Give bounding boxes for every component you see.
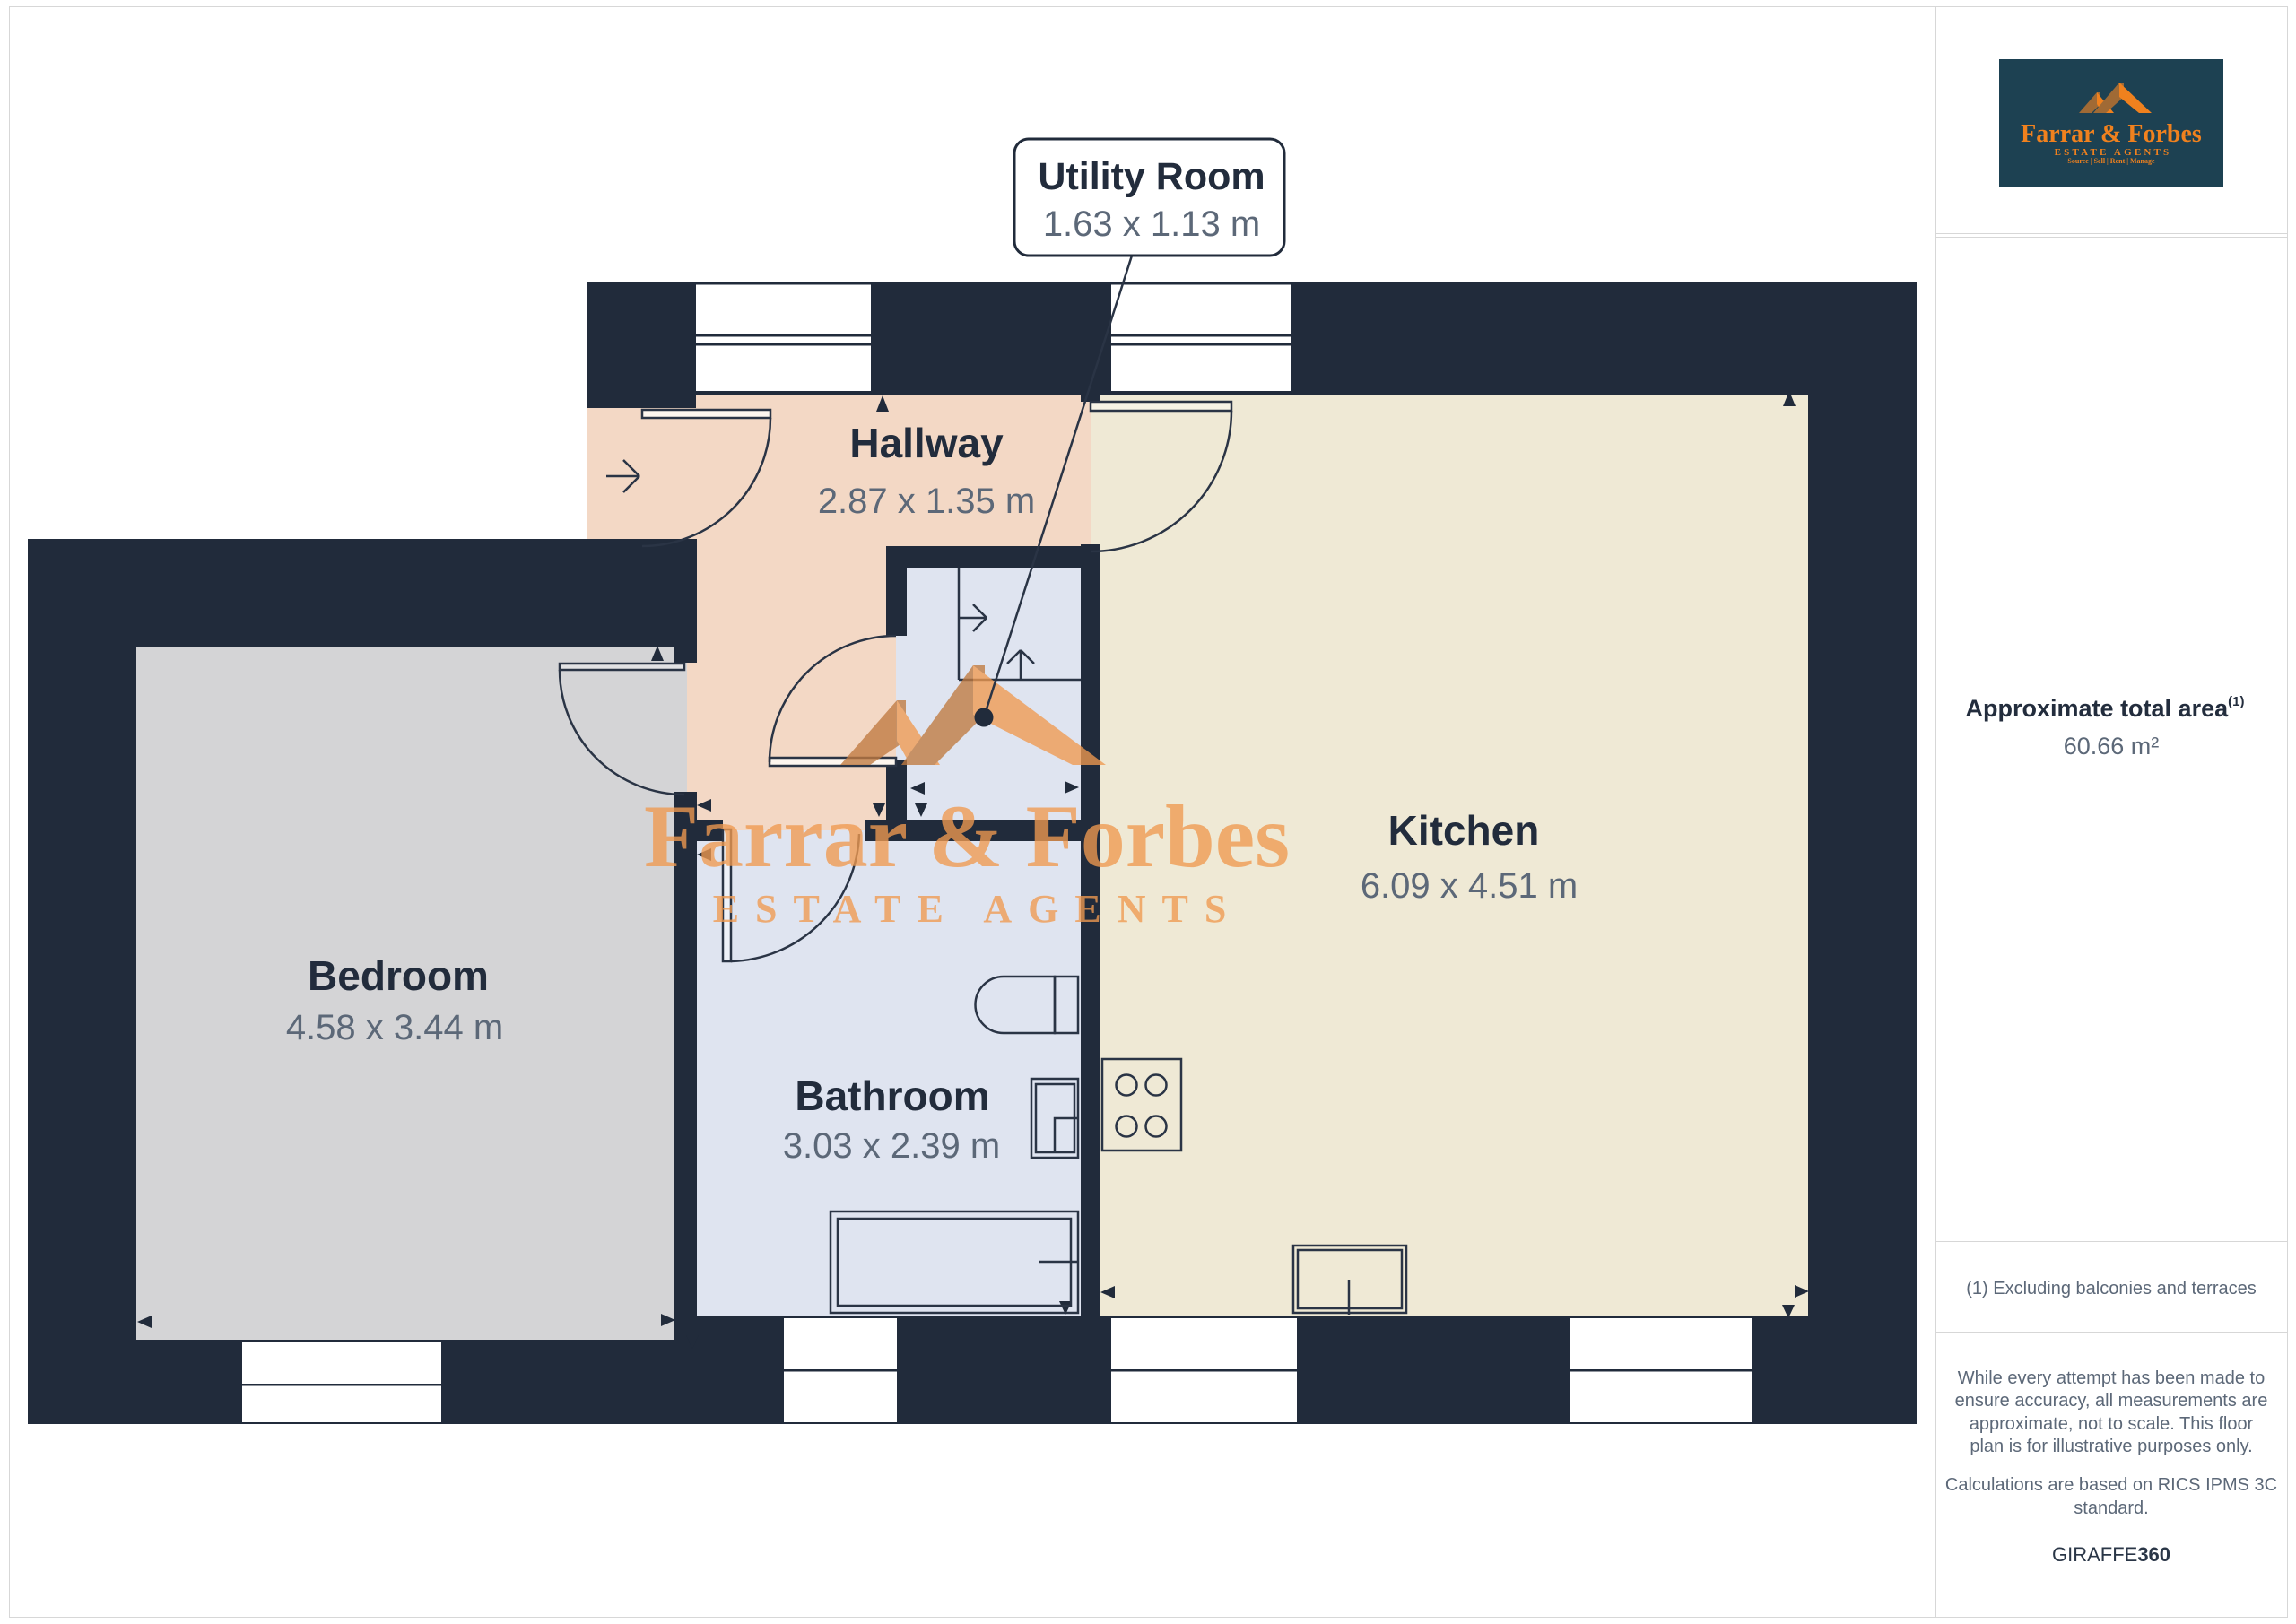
svg-text:standard.: standard. (2074, 1498, 2148, 1518)
svg-text:Kitchen: Kitchen (1388, 807, 1540, 854)
svg-text:Farrar & Forbes: Farrar & Forbes (644, 786, 1290, 886)
svg-text:Bathroom: Bathroom (795, 1073, 989, 1119)
svg-text:Hallway: Hallway (849, 420, 1004, 466)
svg-text:Source | Sell | Rent | Manage: Source | Sell | Rent | Manage (2067, 157, 2155, 165)
svg-text:GIRAFFE360: GIRAFFE360 (2052, 1543, 2170, 1566)
svg-text:ESTATE AGENTS: ESTATE AGENTS (713, 887, 1243, 931)
svg-text:6.09 x 4.51 m: 6.09 x 4.51 m (1361, 866, 1578, 906)
svg-text:4.58 x 3.44 m: 4.58 x 3.44 m (286, 1008, 503, 1047)
svg-text:Approximate total area(1): Approximate total area(1) (1966, 694, 2245, 722)
svg-text:1.63 x 1.13 m: 1.63 x 1.13 m (1043, 204, 1260, 244)
svg-text:Farrar & Forbes: Farrar & Forbes (2021, 120, 2202, 148)
svg-text:60.66 m²: 60.66 m² (2064, 733, 2160, 760)
svg-text:plan is for illustrative purpo: plan is for illustrative purposes only. (1970, 1437, 2252, 1456)
svg-text:approximate, not to scale. Thi: approximate, not to scale. This floor (1970, 1414, 2254, 1434)
svg-text:2.87 x 1.35 m: 2.87 x 1.35 m (818, 482, 1035, 521)
svg-text:Bedroom: Bedroom (308, 952, 489, 999)
svg-text:Calculations are based on RICS: Calculations are based on RICS IPMS 3C (1945, 1475, 2277, 1495)
svg-text:While every attempt has been m: While every attempt has been made to (1958, 1368, 2265, 1388)
svg-text:3.03 x 2.39 m: 3.03 x 2.39 m (783, 1126, 1000, 1166)
svg-text:(1) Excluding balconies and te: (1) Excluding balconies and terraces (1966, 1279, 2257, 1298)
svg-text:Utility Room: Utility Room (1038, 155, 1265, 198)
svg-text:ensure accuracy, all measureme: ensure accuracy, all measurements are (1955, 1391, 2268, 1411)
